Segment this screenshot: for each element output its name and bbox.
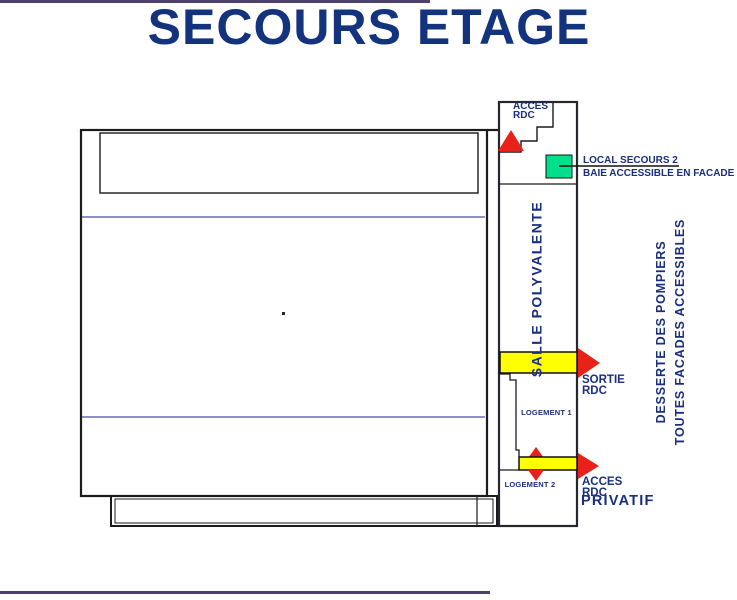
plan-page: { "page": { "title": "SECOURS ETAGE" }, … [0, 0, 737, 600]
label-desserte-line2: TOUTES FACADES ACCESSIBLES [671, 219, 690, 445]
center-point-mark [282, 312, 285, 315]
label-baie-accessible: BAIE ACCESSIBLE EN FACADE [583, 169, 734, 180]
bottom-terrace-outline [111, 496, 497, 526]
floor-plan-drawing [0, 0, 737, 600]
label-logement-2: LOGEMENT 2 [499, 481, 561, 489]
label-desserte-line1: DESSERTE DES POMPIERS [652, 219, 671, 445]
label-desserte-pompiers: DESSERTE DES POMPIERS TOUTES FACADES ACC… [652, 219, 690, 445]
upper-room-outline [100, 133, 478, 193]
label-acces-rdc-top-line2: RDC [513, 110, 535, 121]
label-salle-polyvalente: SALLE POLYVALENTE [530, 201, 545, 377]
label-sortie-rdc: SORTIE RDC [582, 375, 625, 396]
label-logement-1: LOGEMENT 1 [516, 409, 577, 417]
label-sortie-line2: RDC [582, 385, 607, 397]
label-local-secours-2: LOCAL SECOURS 2 [583, 156, 678, 167]
label-privatif: PRIVATIF [581, 494, 655, 509]
exit-path-bar-2 [519, 457, 577, 470]
bottom-terrace-inner-line [115, 499, 493, 523]
label-acces-rdc-top: ACCES RDC [513, 102, 548, 120]
